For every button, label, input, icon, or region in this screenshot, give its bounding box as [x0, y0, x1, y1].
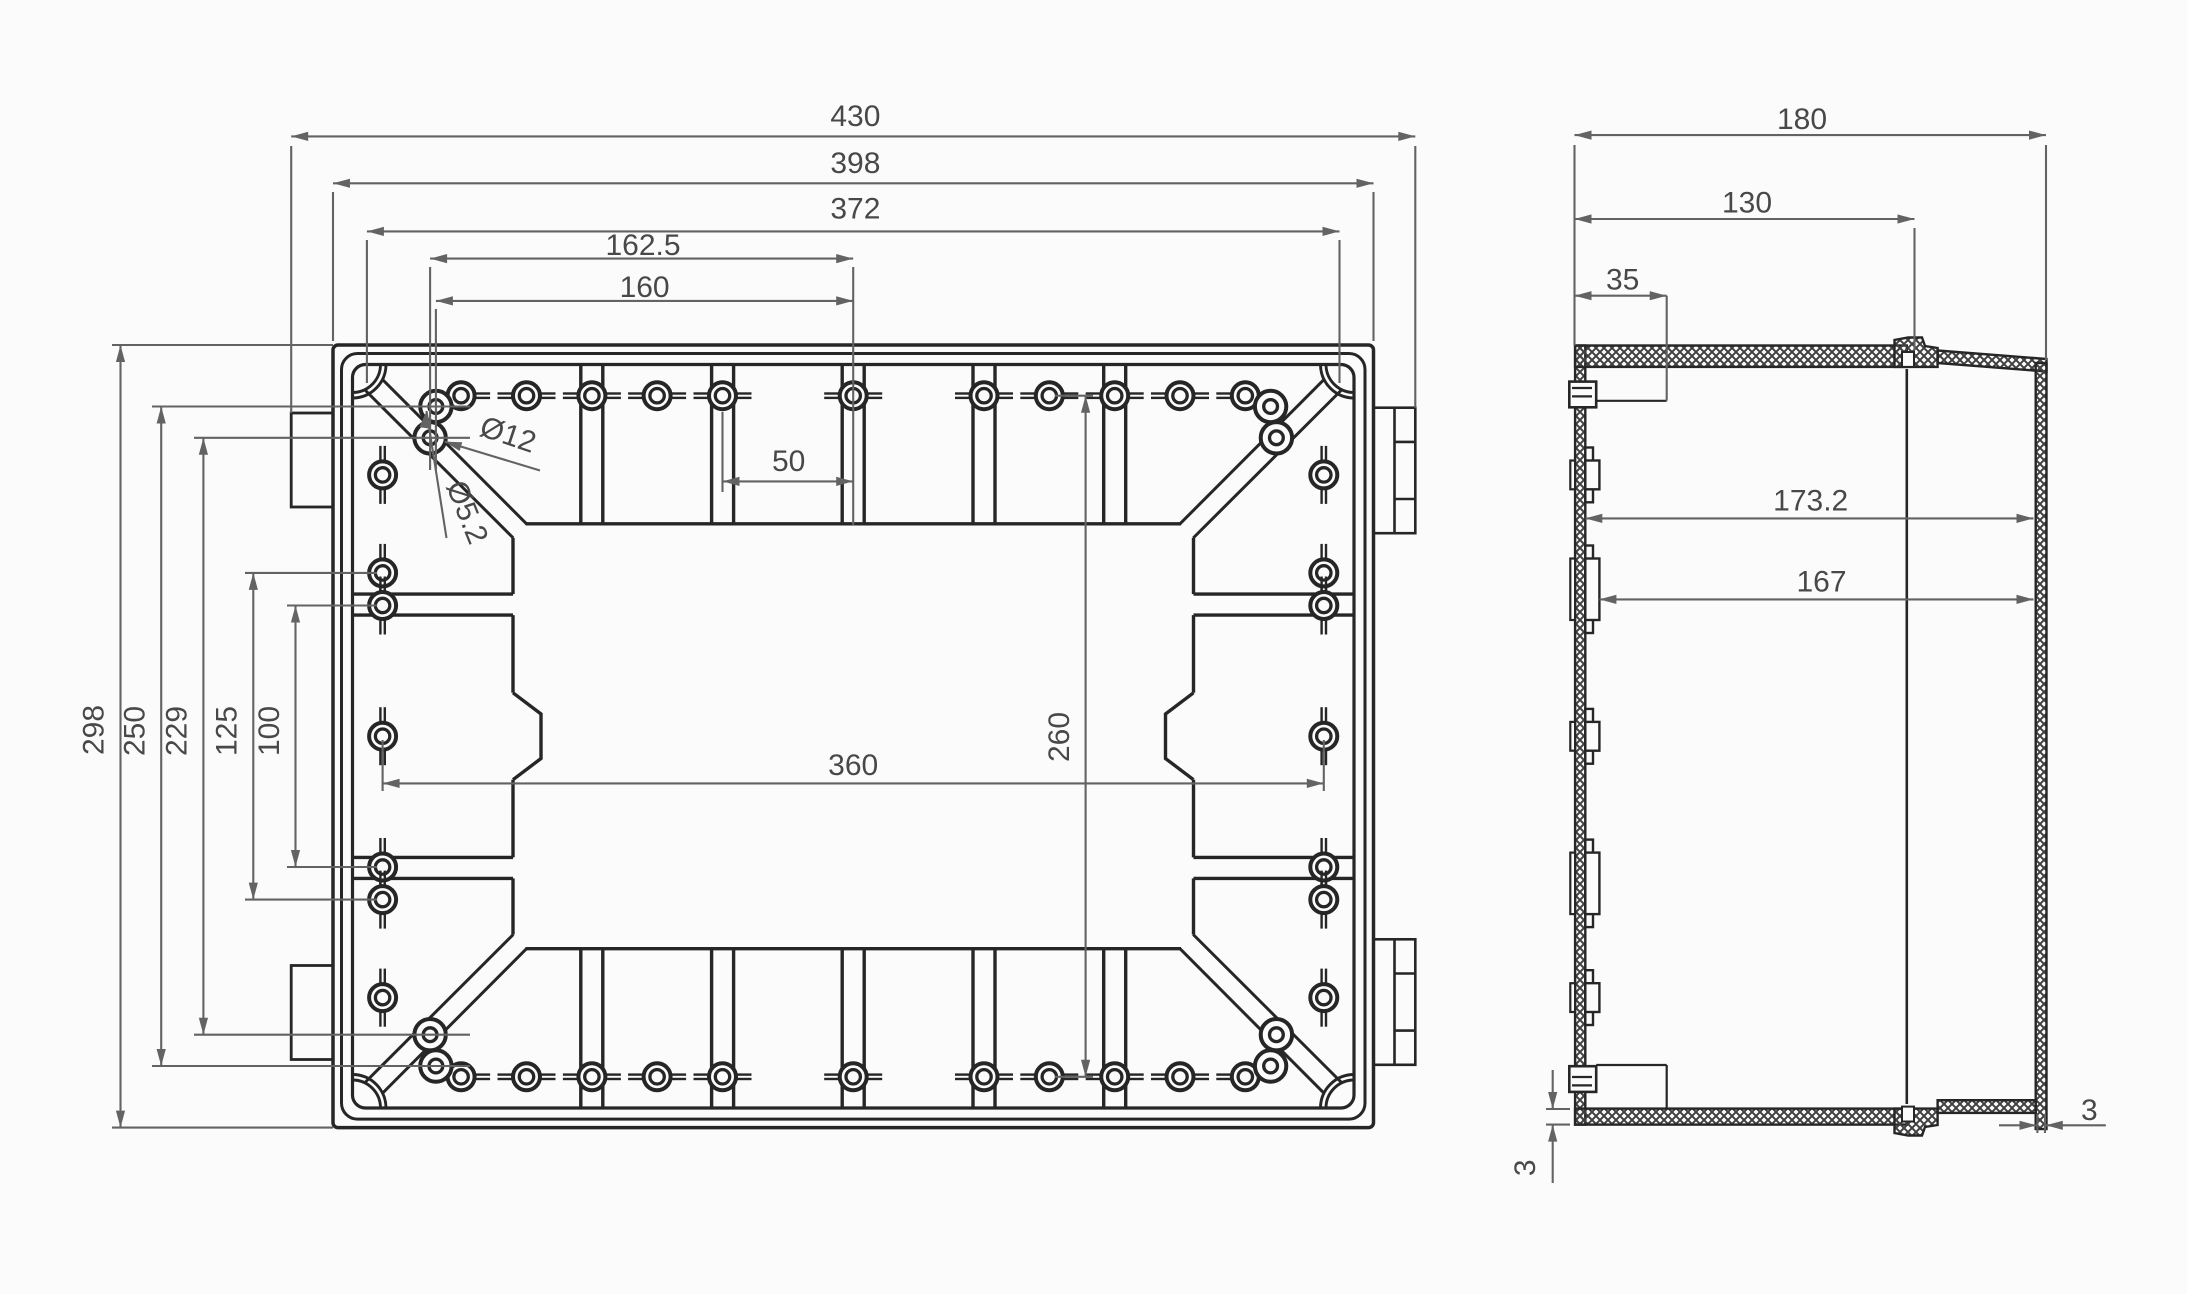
svg-text:180: 180 [1777, 103, 1827, 136]
svg-text:167: 167 [1796, 566, 1846, 599]
svg-text:173.2: 173.2 [1773, 485, 1848, 518]
svg-text:229: 229 [161, 706, 194, 756]
svg-text:125: 125 [211, 706, 244, 756]
svg-text:3: 3 [2081, 1094, 2098, 1127]
svg-text:3: 3 [1509, 1159, 1542, 1176]
svg-text:162.5: 162.5 [605, 229, 680, 262]
svg-text:398: 398 [830, 147, 880, 180]
svg-text:100: 100 [253, 706, 286, 756]
svg-text:130: 130 [1722, 187, 1772, 220]
svg-text:250: 250 [118, 706, 151, 756]
svg-text:35: 35 [1606, 264, 1639, 297]
svg-text:160: 160 [620, 271, 670, 304]
svg-text:372: 372 [830, 193, 880, 226]
svg-text:360: 360 [828, 749, 878, 782]
svg-text:260: 260 [1043, 712, 1076, 762]
svg-text:298: 298 [78, 705, 111, 755]
svg-text:50: 50 [772, 445, 805, 478]
svg-text:430: 430 [830, 100, 880, 133]
